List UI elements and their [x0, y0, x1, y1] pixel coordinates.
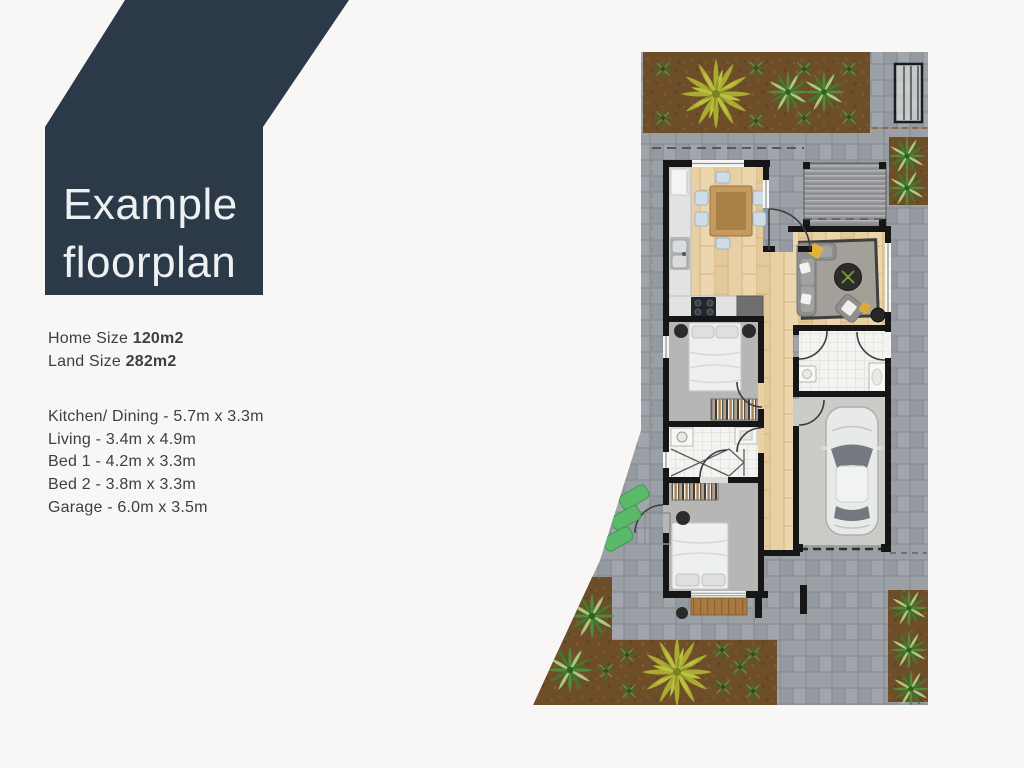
pergola — [803, 162, 886, 226]
kitchen-island — [737, 296, 763, 317]
bed2 — [672, 511, 728, 589]
coffee-table-round — [835, 264, 862, 291]
page: Example floorplan Home Size 120m2 Land S… — [0, 0, 1024, 768]
bed2-deck — [691, 598, 747, 615]
car — [821, 407, 883, 535]
side-gate — [895, 64, 922, 122]
bed1-wardrobe — [711, 399, 758, 420]
kitchen-sink — [670, 237, 690, 270]
fridge — [671, 169, 689, 195]
floorplan-rendering — [0, 0, 1024, 768]
hallway-floor — [763, 252, 793, 552]
bed2-wardrobe — [672, 483, 718, 500]
cooktop — [691, 297, 716, 317]
outdoor-pot — [676, 607, 688, 619]
